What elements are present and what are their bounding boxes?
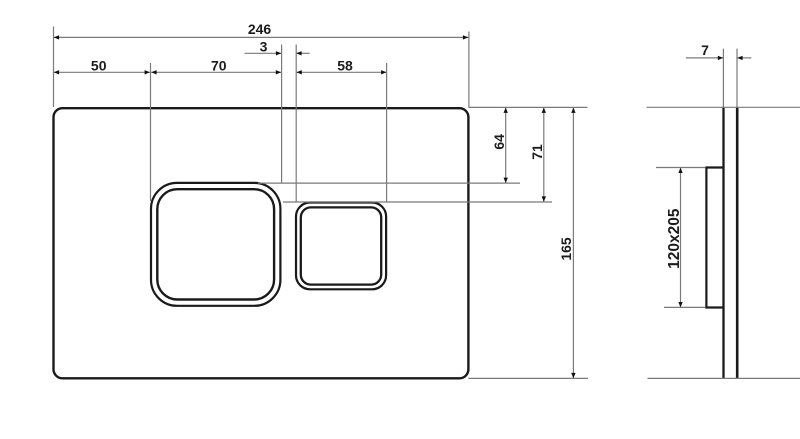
- svg-text:165: 165: [558, 237, 574, 261]
- svg-text:3: 3: [260, 38, 268, 54]
- svg-text:120x205: 120x205: [666, 208, 683, 269]
- svg-text:246: 246: [248, 21, 272, 37]
- svg-text:71: 71: [529, 144, 545, 160]
- svg-text:7: 7: [701, 42, 709, 58]
- svg-text:50: 50: [91, 57, 107, 73]
- svg-text:58: 58: [337, 57, 353, 73]
- svg-text:64: 64: [491, 134, 507, 150]
- svg-text:70: 70: [211, 57, 227, 73]
